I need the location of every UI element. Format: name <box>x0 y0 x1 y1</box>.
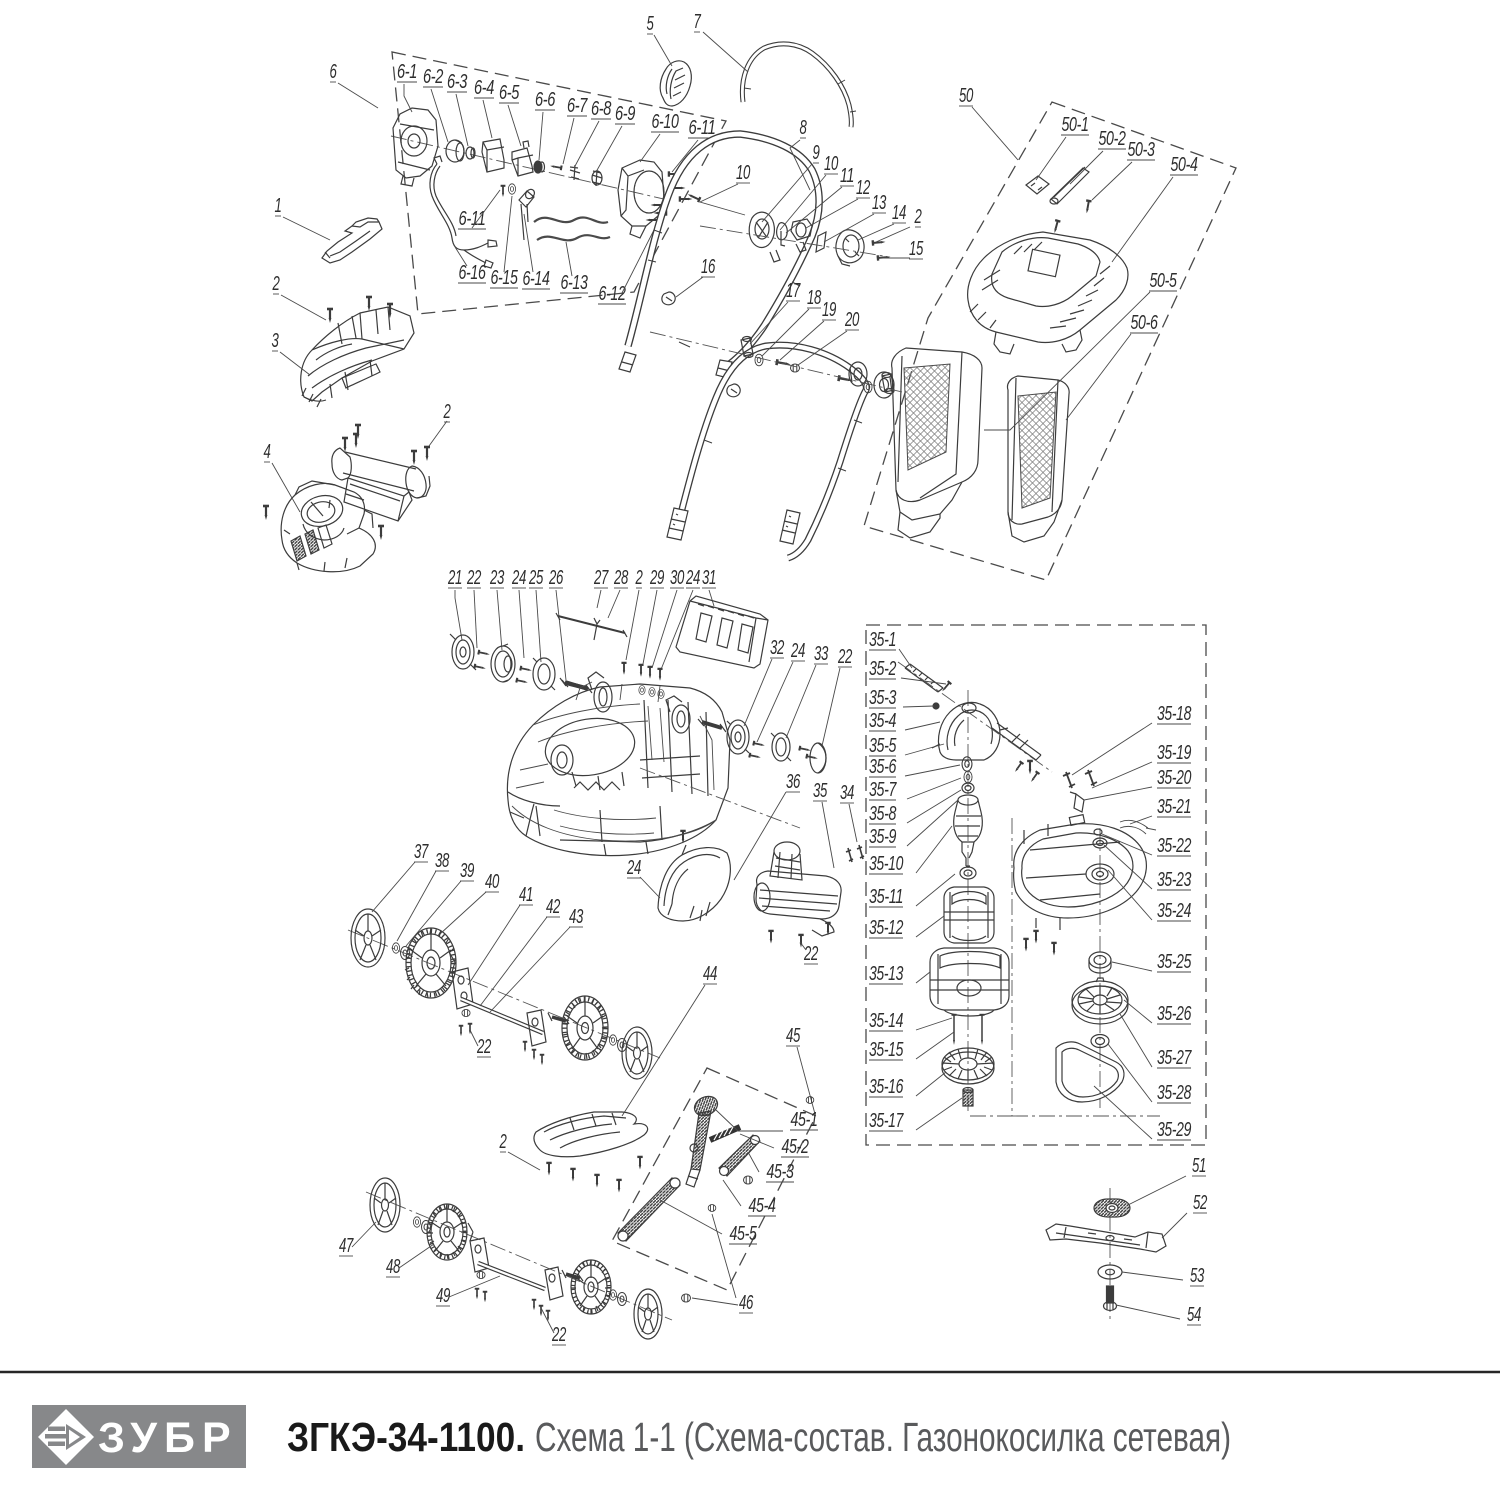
svg-text:3: 3 <box>272 330 279 352</box>
svg-text:43: 43 <box>569 906 583 928</box>
svg-text:5: 5 <box>647 13 655 35</box>
svg-text:10: 10 <box>736 162 750 184</box>
svg-text:ЗГКЭ-34-1100.Схема 1-1 (Схема-: ЗГКЭ-34-1100.Схема 1-1 (Схема-состав. Га… <box>287 1414 1231 1460</box>
svg-text:14: 14 <box>892 202 906 224</box>
svg-text:6-6: 6-6 <box>535 89 556 111</box>
svg-text:45-5: 45-5 <box>730 1223 758 1245</box>
svg-text:34: 34 <box>840 782 854 804</box>
svg-text:17: 17 <box>786 280 801 302</box>
svg-text:10: 10 <box>824 153 838 175</box>
svg-text:32: 32 <box>770 637 784 659</box>
svg-text:35-5: 35-5 <box>869 735 897 757</box>
svg-text:35-24: 35-24 <box>1157 900 1191 922</box>
svg-text:39: 39 <box>460 860 474 882</box>
svg-text:6-13: 6-13 <box>561 272 588 294</box>
svg-text:6: 6 <box>330 61 338 83</box>
svg-text:25: 25 <box>528 567 544 589</box>
svg-text:22: 22 <box>837 646 852 668</box>
svg-text:35-9: 35-9 <box>869 826 896 848</box>
svg-text:45-4: 45-4 <box>749 1195 776 1217</box>
svg-text:54: 54 <box>1187 1304 1201 1326</box>
svg-text:6-2: 6-2 <box>423 66 443 88</box>
svg-text:50-2: 50-2 <box>1099 128 1126 150</box>
svg-text:15: 15 <box>909 238 924 260</box>
svg-text:9: 9 <box>813 142 820 164</box>
svg-text:6-16: 6-16 <box>459 262 487 284</box>
svg-text:6-8: 6-8 <box>591 98 611 120</box>
svg-text:35-20: 35-20 <box>1157 767 1191 789</box>
svg-text:40: 40 <box>485 871 499 893</box>
svg-text:45-1: 45-1 <box>791 1109 818 1131</box>
svg-text:12: 12 <box>856 177 870 199</box>
svg-text:46: 46 <box>739 1292 754 1314</box>
svg-text:24: 24 <box>626 857 641 879</box>
svg-text:53: 53 <box>1190 1265 1204 1287</box>
svg-text:2: 2 <box>914 206 922 228</box>
svg-text:44: 44 <box>703 963 717 985</box>
svg-text:35-11: 35-11 <box>869 886 903 908</box>
svg-text:35-23: 35-23 <box>1157 869 1191 891</box>
svg-text:47: 47 <box>339 1235 354 1257</box>
svg-text:49: 49 <box>436 1285 450 1307</box>
svg-text:50-5: 50-5 <box>1150 270 1178 292</box>
svg-text:20: 20 <box>844 309 859 331</box>
svg-text:45: 45 <box>786 1025 801 1047</box>
svg-text:1: 1 <box>275 195 282 217</box>
svg-text:42: 42 <box>546 896 560 918</box>
svg-text:6-14: 6-14 <box>523 268 550 290</box>
svg-text:6-11: 6-11 <box>689 117 716 139</box>
svg-text:50: 50 <box>959 85 973 107</box>
svg-text:16: 16 <box>701 256 716 278</box>
svg-text:35-29: 35-29 <box>1157 1119 1191 1141</box>
svg-text:35-27: 35-27 <box>1157 1047 1192 1069</box>
svg-text:50-1: 50-1 <box>1062 114 1089 136</box>
svg-text:35-14: 35-14 <box>869 1010 903 1032</box>
svg-text:50-4: 50-4 <box>1171 154 1198 176</box>
svg-text:35-15: 35-15 <box>869 1039 904 1061</box>
svg-text:6-5: 6-5 <box>499 82 520 104</box>
svg-text:6-9: 6-9 <box>615 103 635 125</box>
svg-text:35-28: 35-28 <box>1157 1082 1191 1104</box>
svg-text:51: 51 <box>1192 1155 1206 1177</box>
svg-text:35-16: 35-16 <box>869 1076 904 1098</box>
svg-text:45-2: 45-2 <box>782 1136 809 1158</box>
svg-text:26: 26 <box>548 567 564 589</box>
svg-text:2: 2 <box>635 567 643 589</box>
svg-text:24: 24 <box>685 567 700 589</box>
svg-text:30: 30 <box>670 567 684 589</box>
svg-text:35-8: 35-8 <box>869 803 896 825</box>
svg-text:35-3: 35-3 <box>869 687 896 709</box>
svg-text:35-6: 35-6 <box>869 756 897 778</box>
svg-text:22: 22 <box>466 567 481 589</box>
svg-text:35-2: 35-2 <box>869 658 896 680</box>
svg-text:35-7: 35-7 <box>869 779 897 801</box>
svg-text:35-13: 35-13 <box>869 963 903 985</box>
svg-text:33: 33 <box>814 643 828 665</box>
svg-text:48: 48 <box>386 1256 400 1278</box>
svg-text:35-12: 35-12 <box>869 917 903 939</box>
svg-text:35-19: 35-19 <box>1157 742 1191 764</box>
svg-text:45-3: 45-3 <box>767 1161 794 1183</box>
svg-text:38: 38 <box>435 850 449 872</box>
svg-text:35-1: 35-1 <box>869 629 896 651</box>
svg-text:22: 22 <box>551 1324 566 1346</box>
svg-text:52: 52 <box>1193 1192 1207 1214</box>
svg-text:35-22: 35-22 <box>1157 835 1191 857</box>
svg-text:35: 35 <box>813 780 828 802</box>
svg-text:11: 11 <box>840 165 854 187</box>
svg-text:41: 41 <box>519 884 533 906</box>
svg-text:19: 19 <box>822 299 836 321</box>
svg-text:8: 8 <box>800 117 807 139</box>
svg-text:31: 31 <box>702 567 716 589</box>
svg-text:6-11: 6-11 <box>459 208 486 230</box>
svg-text:24: 24 <box>790 640 805 662</box>
svg-text:7: 7 <box>694 11 702 33</box>
svg-text:24: 24 <box>511 567 526 589</box>
svg-text:36: 36 <box>786 771 801 793</box>
svg-text:6-1: 6-1 <box>397 61 417 83</box>
svg-text:28: 28 <box>613 567 628 589</box>
svg-text:22: 22 <box>803 943 818 965</box>
svg-text:13: 13 <box>872 192 886 214</box>
svg-text:2: 2 <box>499 1131 507 1153</box>
svg-text:35-10: 35-10 <box>869 853 903 875</box>
svg-text:6-10: 6-10 <box>652 111 679 133</box>
svg-text:4: 4 <box>264 441 271 463</box>
svg-text:35-18: 35-18 <box>1157 703 1191 725</box>
svg-text:6-4: 6-4 <box>474 77 494 99</box>
svg-text:50-6: 50-6 <box>1131 312 1159 334</box>
svg-text:6-12: 6-12 <box>599 283 626 305</box>
svg-text:18: 18 <box>807 287 821 309</box>
svg-text:21: 21 <box>447 567 462 589</box>
svg-text:35-17: 35-17 <box>869 1110 904 1132</box>
svg-text:ЗУБР: ЗУБР <box>98 1414 238 1462</box>
svg-text:35-25: 35-25 <box>1157 951 1192 973</box>
svg-text:27: 27 <box>593 567 609 589</box>
svg-text:6-3: 6-3 <box>447 71 467 93</box>
svg-text:29: 29 <box>649 567 664 589</box>
svg-text:35-4: 35-4 <box>869 710 896 732</box>
svg-text:2: 2 <box>272 273 280 295</box>
svg-text:23: 23 <box>489 567 504 589</box>
svg-text:50-3: 50-3 <box>1128 139 1155 161</box>
svg-text:2: 2 <box>443 401 451 423</box>
svg-text:35-26: 35-26 <box>1157 1003 1192 1025</box>
svg-text:35-21: 35-21 <box>1157 796 1191 818</box>
svg-text:22: 22 <box>476 1036 491 1058</box>
svg-text:37: 37 <box>414 841 429 863</box>
svg-text:6-7: 6-7 <box>567 95 588 117</box>
